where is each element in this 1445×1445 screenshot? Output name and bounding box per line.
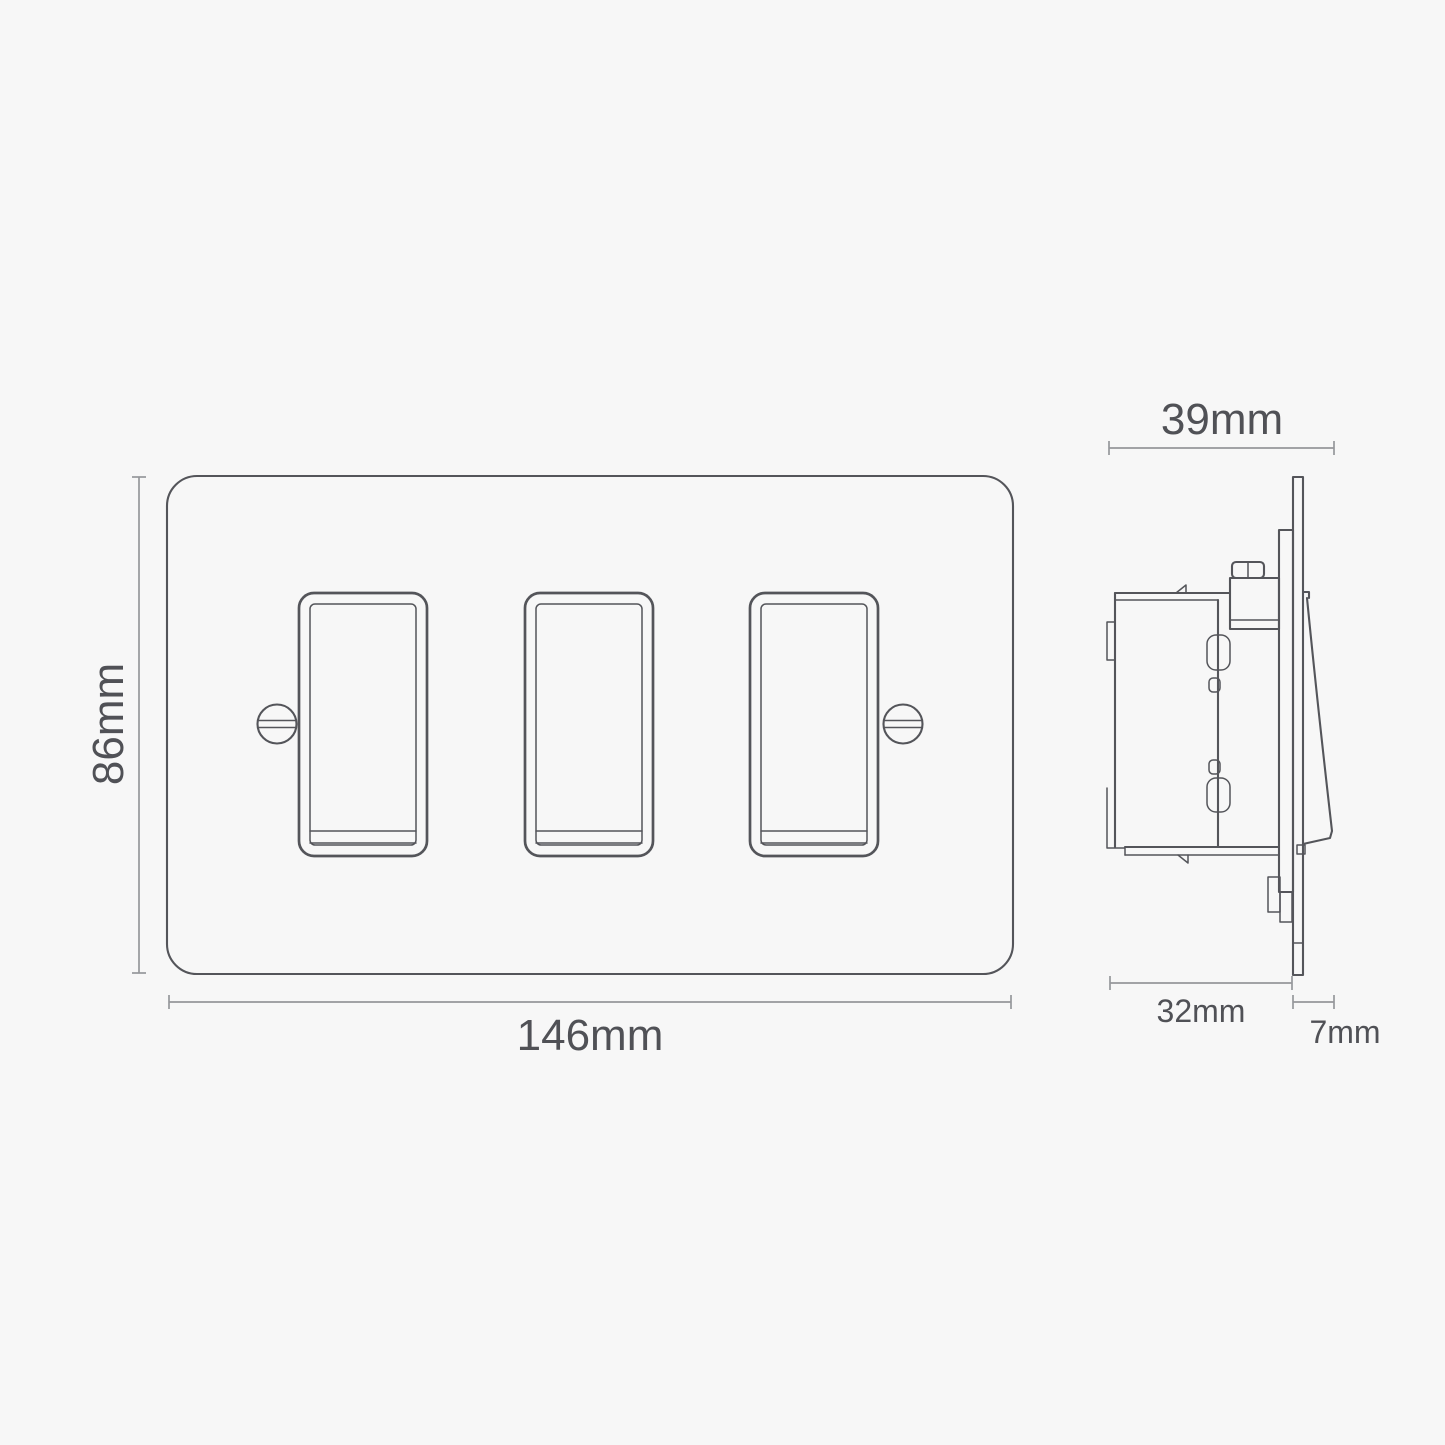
width-dimension-label: 146mm bbox=[517, 1011, 664, 1060]
front-view: 86mm 146mm bbox=[84, 476, 1013, 1060]
faceplate-side bbox=[1293, 477, 1303, 975]
rocker-switch-1 bbox=[299, 593, 427, 856]
mounting-depth-label: 32mm bbox=[1157, 993, 1246, 1029]
overall-depth-label: 39mm bbox=[1161, 395, 1283, 444]
overall-depth-dimension: 39mm bbox=[1109, 395, 1334, 455]
faceplate-depth-label: 7mm bbox=[1309, 1014, 1380, 1050]
rocker-switch-2 bbox=[525, 593, 653, 856]
height-dimension-label: 86mm bbox=[84, 663, 133, 785]
faceplate-front bbox=[167, 476, 1013, 974]
terminal-screw bbox=[1232, 562, 1264, 578]
subframe-side bbox=[1279, 530, 1293, 892]
screw-left bbox=[258, 705, 297, 744]
backbox-side bbox=[1107, 585, 1292, 922]
mounting-depth-dimension: 32mm bbox=[1110, 976, 1292, 1029]
faceplate-depth-dimension: 7mm bbox=[1293, 995, 1381, 1050]
rocker-switch-3 bbox=[750, 593, 878, 856]
diagram-canvas: 86mm 146mm bbox=[0, 0, 1445, 1445]
screw-right bbox=[884, 705, 923, 744]
dimension-diagram: 86mm 146mm bbox=[0, 0, 1445, 1445]
height-dimension: 86mm bbox=[84, 477, 146, 973]
terminal-block bbox=[1230, 578, 1279, 629]
side-view: 39mm 32mm 7mm bbox=[1107, 395, 1381, 1050]
width-dimension: 146mm bbox=[169, 995, 1011, 1060]
